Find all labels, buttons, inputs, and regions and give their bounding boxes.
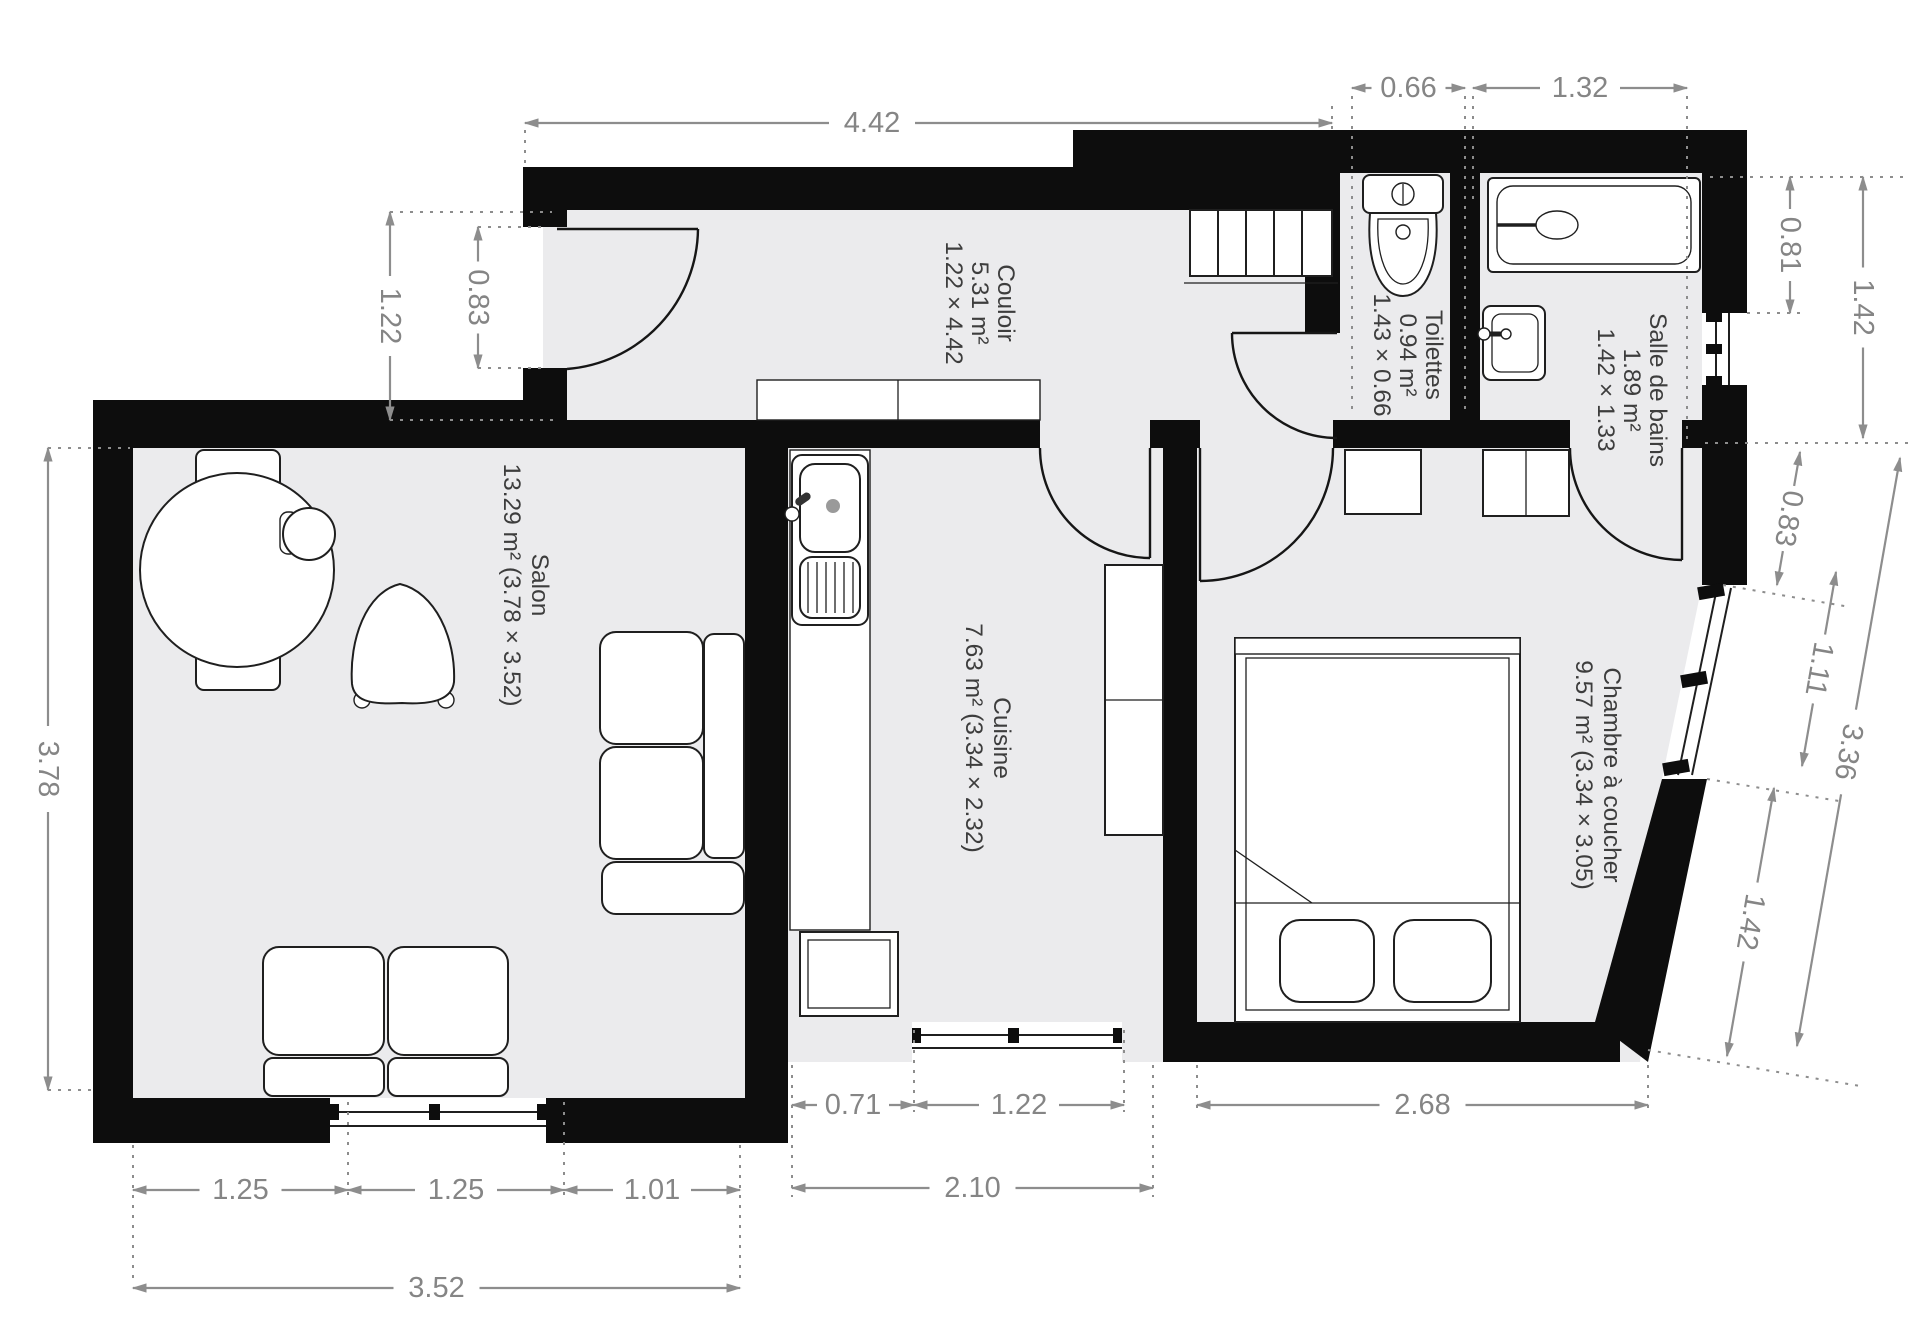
dim-bottom-salon-width-label: 3.52 — [408, 1272, 464, 1304]
dim-bottom-cuisine-width-label: 2.10 — [944, 1172, 1000, 1204]
dim-ref-line — [1707, 779, 1845, 802]
dim-right-chambre-b: 1.42 — [1727, 788, 1774, 1056]
dim-left-entry: 1.22 — [374, 212, 406, 420]
dresser — [1345, 450, 1421, 514]
floor-plan: Salon 13.29 m² (3.78 × 3.52) Couloir 5.3… — [0, 0, 1920, 1336]
svg-text:Couloir: Couloir — [992, 264, 1019, 342]
oven-icon — [800, 932, 898, 1016]
dim-bottom-salon-b: 1.25 — [348, 1174, 564, 1206]
kitchen-sink-icon — [785, 455, 868, 625]
svg-text:1.22 × 4.42: 1.22 × 4.42 — [940, 241, 967, 364]
dim-bottom-salon-c-label: 1.01 — [624, 1174, 680, 1206]
wall-bains-bottom-right — [1682, 420, 1725, 448]
window-cuisine — [912, 1022, 1122, 1062]
dresser — [1483, 450, 1569, 516]
window-salon — [330, 1098, 546, 1143]
window-bains-right — [1702, 313, 1747, 385]
svg-text:Cuisine: Cuisine — [988, 697, 1015, 779]
wall-left — [93, 400, 133, 1143]
dim-bottom-cuisine-a: 0.71 — [792, 1089, 914, 1121]
dim-right-window-label: 1.11 — [1799, 639, 1840, 698]
dim-right-total: 3.36 — [1797, 458, 1900, 1046]
dim-left-salon-height: 3.78 — [32, 448, 64, 1090]
svg-text:9.57 m² (3.34 × 3.05): 9.57 m² (3.34 × 3.05) — [1570, 660, 1597, 889]
svg-text:Chambre à coucher: Chambre à coucher — [1598, 667, 1625, 882]
dim-bottom-cuisine-width: 2.10 — [792, 1172, 1153, 1204]
sofa-right — [600, 632, 744, 914]
dim-bottom-chambre-width-label: 2.68 — [1394, 1089, 1450, 1121]
dim-bottom-salon-a: 1.25 — [133, 1174, 348, 1206]
dim-top-toilettes-width-label: 0.66 — [1380, 72, 1436, 104]
dim-right-total-label: 3.36 — [1828, 721, 1869, 782]
svg-text:Salon: Salon — [526, 554, 553, 617]
svg-text:Toilettes: Toilettes — [1420, 310, 1447, 400]
dim-ref-line — [1648, 1050, 1860, 1086]
svg-text:5.31 m²: 5.31 m² — [966, 261, 993, 344]
dim-left-salon-height-label: 3.78 — [32, 741, 64, 797]
dim-right-bains-b-label: 1.42 — [1847, 279, 1879, 335]
wall-bains-bottom-left — [1480, 420, 1570, 448]
dim-bottom-cuisine-a-label: 0.71 — [825, 1089, 881, 1121]
wall-salon-cuisine — [745, 420, 788, 1143]
dim-left-door-label: 0.83 — [462, 269, 494, 325]
wall-bottom-right — [1163, 1022, 1620, 1062]
dim-right-bains-a: 0.81 — [1774, 177, 1806, 313]
floor-plan-page: Salon 13.29 m² (3.78 × 3.52) Couloir 5.3… — [0, 0, 1920, 1336]
dim-top-toilettes-width: 0.66 — [1352, 72, 1465, 104]
bathroom-sink-icon — [1478, 306, 1545, 380]
dim-right-chambre-a: 0.83 — [1768, 452, 1809, 585]
room-label-chambre: Chambre à coucher 9.57 m² (3.34 × 3.05) — [1570, 660, 1625, 889]
pillow — [1394, 920, 1491, 1002]
dim-right-chambre-b-label: 1.42 — [1730, 891, 1771, 952]
hallway-closet — [757, 380, 1040, 420]
dim-bottom-salon-width: 3.52 — [133, 1272, 740, 1304]
fridge-icon — [1105, 565, 1163, 835]
dim-right-window: 1.11 — [1799, 572, 1840, 766]
vase-icon — [280, 508, 335, 560]
svg-text:0.94 m²: 0.94 m² — [1394, 313, 1421, 396]
dim-bottom-salon-c: 1.01 — [564, 1174, 740, 1206]
svg-text:1.89 m²: 1.89 m² — [1618, 348, 1645, 431]
dim-bottom-cuisine-window: 1.22 — [914, 1089, 1124, 1121]
wall-right-upper — [1702, 130, 1747, 313]
dim-right-chambre-a-label: 0.83 — [1768, 488, 1809, 549]
wall-toilettes-bottom — [1333, 420, 1485, 448]
dim-bottom-salon-b-label: 1.25 — [428, 1174, 484, 1206]
dim-top-bains-width-label: 1.32 — [1552, 72, 1608, 104]
wall-salon-top — [93, 400, 567, 448]
wall-top-right — [1305, 130, 1747, 173]
pillow — [1280, 920, 1374, 1002]
svg-text:13.29 m² (3.78 × 3.52): 13.29 m² (3.78 × 3.52) — [498, 463, 525, 706]
dim-bottom-salon-a-label: 1.25 — [212, 1174, 268, 1206]
double-bed — [1235, 638, 1520, 1022]
svg-text:7.63 m² (3.34 × 2.32): 7.63 m² (3.34 × 2.32) — [960, 623, 987, 852]
wall-couloir-bottom — [567, 420, 1040, 448]
dim-top-bains-width: 1.32 — [1473, 72, 1687, 104]
wall-right-mid — [1702, 385, 1747, 585]
dim-top-couloir-width-label: 4.42 — [844, 107, 900, 139]
wall-top-step — [1073, 130, 1332, 210]
wall-top-couloir — [523, 167, 1090, 210]
svg-text:Salle de bains: Salle de bains — [1644, 313, 1671, 467]
svg-text:1.42 × 1.33: 1.42 × 1.33 — [1592, 328, 1619, 451]
bathtub-icon — [1488, 178, 1700, 272]
svg-text:1.43 × 0.66: 1.43 × 0.66 — [1368, 293, 1395, 416]
dim-bottom-cuisine-window-label: 1.22 — [991, 1089, 1047, 1121]
dim-right-bains-a-label: 0.81 — [1774, 217, 1806, 273]
dim-right-bains-b: 1.42 — [1847, 177, 1879, 438]
wall-cuisine-chambre — [1163, 443, 1197, 1062]
radiator-icon — [1184, 210, 1338, 283]
dim-bottom-chambre-width: 2.68 — [1197, 1089, 1648, 1121]
dim-left-door: 0.83 — [462, 227, 494, 368]
dim-left-entry-label: 1.22 — [374, 288, 406, 344]
